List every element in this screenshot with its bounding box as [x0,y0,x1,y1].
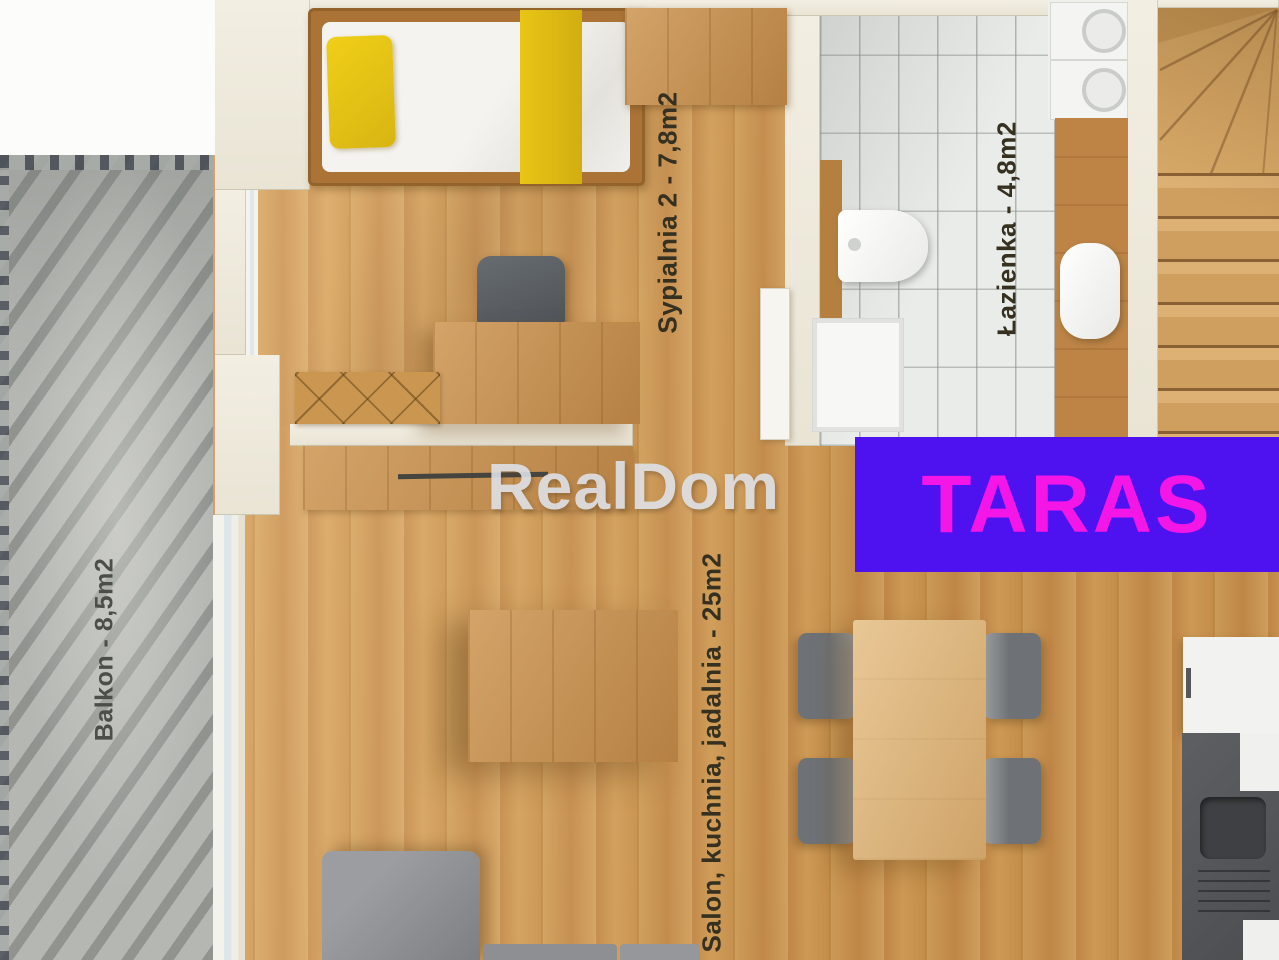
dining-table [853,620,986,860]
shelf-unit [295,372,440,424]
kitchen-cabinet-handle [1186,668,1191,698]
staircase [1158,8,1279,446]
dining-chair [983,758,1041,844]
kitchen-island [468,610,678,762]
bathroom-sink [1060,243,1120,339]
window-living [213,515,245,960]
wall-left-upper [215,0,310,190]
kitchen-cabinet [1240,733,1279,791]
room-label-bedroom2: Sypialnia 2 - 7,8m2 [653,73,684,353]
shower-cabinet [812,318,904,432]
wall-top-stairs [1158,0,1279,8]
taras-label: TARAS [921,458,1212,552]
bathroom-door [760,288,790,440]
window-bedroom [246,190,258,355]
image-blank-corner [0,0,215,155]
taras-overlay: TARAS [855,437,1279,572]
wall-bathroom-stairs [1128,0,1158,446]
wardrobe [625,8,787,105]
sofa-cushion [620,944,700,960]
bed-pillow [326,35,396,149]
kitchen-sink-drainer [1198,866,1270,912]
wall-left-mid [215,355,280,515]
stairs-shading [1158,8,1279,446]
dryer-door-icon [1082,68,1126,112]
kitchen-cabinet [1183,637,1279,733]
desk-chair [477,256,565,330]
wall-mid-horizontal [290,424,633,446]
kitchen-cabinet [1243,920,1279,960]
floorplan-image: Sypialnia 2 - 7,8m2 Łazienka - 4,8m2 Bal… [0,0,1279,960]
sofa-backrest [322,851,480,960]
wall-left-window-pier [215,190,246,355]
washing-machine-door-icon [1082,9,1126,53]
toilet-flush-button [848,238,861,251]
room-label-bathroom: Łazienka - 4,8m2 [992,109,1023,349]
dining-chair [798,633,856,719]
dining-chair [983,633,1041,719]
sofa-cushion [483,944,617,960]
desk [433,322,640,424]
room-label-balcony: Balkon - 8,5m2 [91,540,120,760]
room-label-living: Salon, kuchnia, jadalnia - 25m2 [697,538,728,960]
dining-chair [798,758,856,844]
balcony-railing-left [0,168,9,960]
bed-blanket [520,10,582,184]
watermark: RealDom [487,448,780,524]
kitchen-sink [1200,797,1266,859]
balcony-railing-top [0,155,213,170]
